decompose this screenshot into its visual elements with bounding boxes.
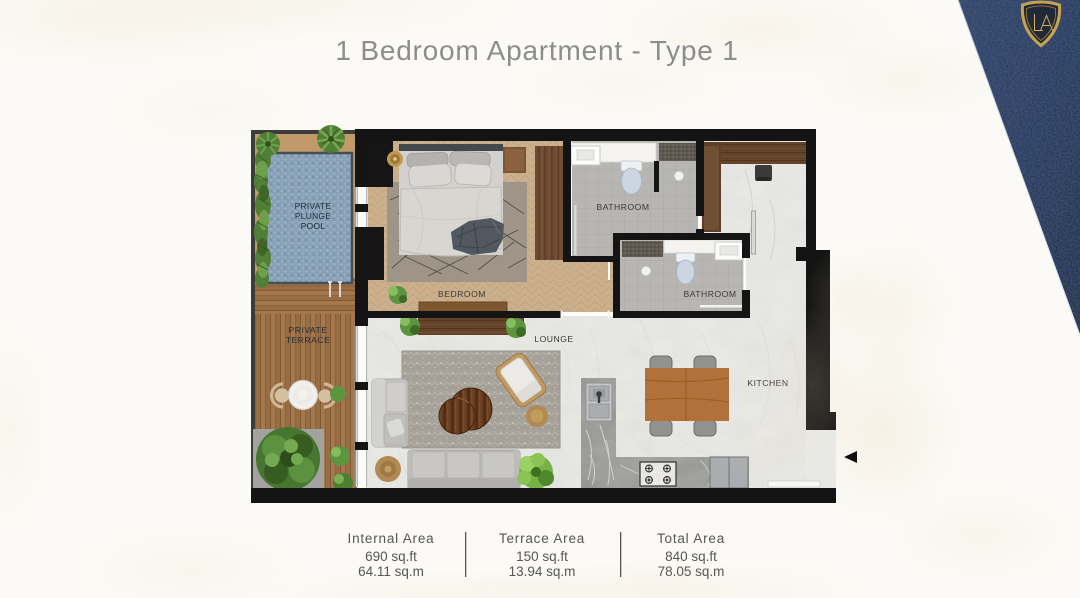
- svg-text:PRIVATE: PRIVATE: [289, 325, 328, 335]
- svg-text:BATHROOM: BATHROOM: [596, 202, 649, 212]
- svg-text:690 sq.ft: 690 sq.ft: [365, 549, 417, 564]
- svg-text:Internal Area: Internal Area: [348, 531, 435, 546]
- svg-text:Terrace Area: Terrace Area: [499, 531, 585, 546]
- svg-text:840 sq.ft: 840 sq.ft: [665, 549, 717, 564]
- svg-text:POOL: POOL: [301, 221, 326, 231]
- svg-text:Total Area: Total Area: [657, 531, 725, 546]
- svg-text:PLUNGE: PLUNGE: [295, 211, 331, 221]
- svg-text:BATHROOM: BATHROOM: [683, 289, 736, 299]
- svg-text:LOUNGE: LOUNGE: [534, 334, 573, 344]
- svg-text:64.11 sq.m: 64.11 sq.m: [358, 564, 424, 579]
- svg-text:PRIVATE: PRIVATE: [295, 201, 332, 211]
- svg-text:13.94 sq.m: 13.94 sq.m: [509, 564, 576, 579]
- svg-text:78.05 sq.m: 78.05 sq.m: [658, 564, 725, 579]
- svg-text:1 Bedroom Apartment - Type 1: 1 Bedroom Apartment - Type 1: [335, 35, 738, 66]
- svg-text:150 sq.ft: 150 sq.ft: [516, 549, 568, 564]
- svg-text:BEDROOM: BEDROOM: [438, 289, 486, 299]
- svg-text:TERRACE: TERRACE: [286, 335, 331, 345]
